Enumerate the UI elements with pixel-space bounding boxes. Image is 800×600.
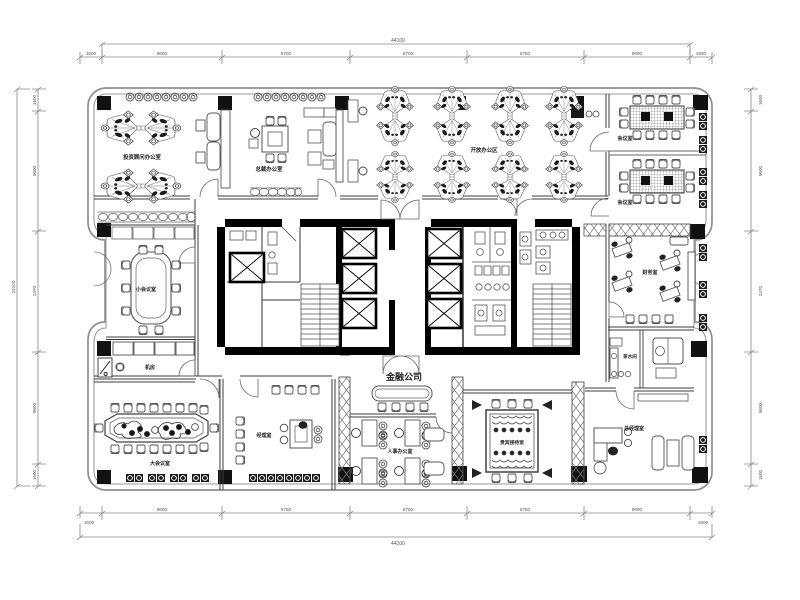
svg-text:总裁办公室: 总裁办公室 — [256, 165, 284, 173]
svg-text:总经理室: 总经理室 — [624, 425, 644, 432]
svg-text:财务室: 财务室 — [641, 269, 657, 276]
svg-text:6700: 6700 — [281, 51, 292, 56]
svg-text:小会议室: 小会议室 — [136, 286, 156, 293]
svg-text:9000: 9000 — [157, 507, 168, 512]
svg-text:6750: 6750 — [520, 51, 531, 56]
svg-text:1600: 1600 — [86, 51, 97, 56]
svg-text:开放办公区: 开放办公区 — [471, 146, 499, 154]
svg-text:1600: 1600 — [758, 469, 763, 480]
svg-text:人事办公室: 人事办公室 — [386, 448, 412, 455]
svg-text:9600: 9600 — [758, 402, 763, 413]
svg-text:44100: 44100 — [391, 541, 405, 547]
svg-text:6700: 6700 — [403, 51, 414, 56]
svg-text:金融公司: 金融公司 — [385, 371, 422, 382]
svg-text:44100: 44100 — [391, 38, 405, 44]
svg-text:1600: 1600 — [696, 51, 707, 56]
svg-text:1600: 1600 — [32, 94, 37, 105]
svg-text:茶水间: 茶水间 — [622, 353, 637, 360]
svg-text:2470: 2470 — [758, 285, 763, 296]
svg-text:9000: 9000 — [157, 51, 168, 56]
svg-text:6750: 6750 — [403, 507, 414, 512]
svg-text:9600: 9600 — [32, 402, 37, 413]
svg-text:1600: 1600 — [32, 469, 37, 480]
svg-text:投资顾问办公室: 投资顾问办公室 — [123, 153, 161, 161]
svg-text:1600: 1600 — [698, 520, 709, 525]
svg-text:6750: 6750 — [281, 507, 292, 512]
svg-text:会议室: 会议室 — [616, 135, 632, 142]
svg-text:会议室: 会议室 — [616, 199, 632, 206]
svg-text:6750: 6750 — [520, 507, 531, 512]
svg-text:9600: 9600 — [32, 165, 37, 176]
svg-text:2470: 2470 — [32, 285, 37, 296]
svg-text:贵宾接待室: 贵宾接待室 — [500, 439, 524, 446]
svg-text:1600: 1600 — [758, 94, 763, 105]
svg-text:9000: 9000 — [632, 507, 643, 512]
svg-text:经理室: 经理室 — [256, 432, 271, 439]
svg-text:9600: 9600 — [758, 165, 763, 176]
svg-text:9000: 9000 — [632, 51, 643, 56]
svg-text:大会议室: 大会议室 — [150, 460, 170, 467]
svg-text:24200: 24200 — [11, 280, 16, 293]
svg-text:机房: 机房 — [144, 364, 155, 371]
svg-text:1600: 1600 — [84, 520, 95, 525]
